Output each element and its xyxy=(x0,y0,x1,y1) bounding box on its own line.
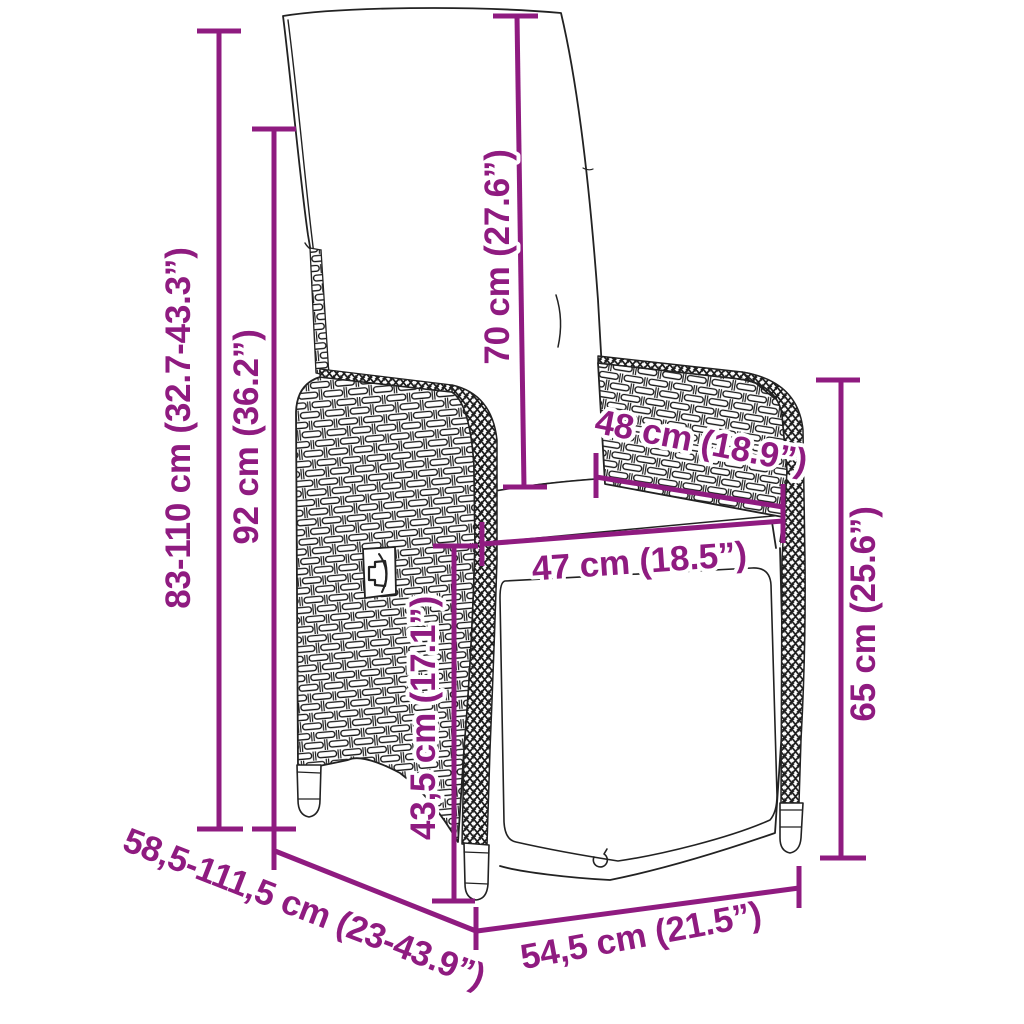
svg-text:83-110 cm (32.7-43.3”): 83-110 cm (32.7-43.3”) xyxy=(159,247,198,608)
svg-text:65 cm (25.6”): 65 cm (25.6”) xyxy=(844,506,883,721)
svg-text:70 cm (27.6”): 70 cm (27.6”) xyxy=(478,149,517,364)
svg-text:92 cm (36.2”): 92 cm (36.2”) xyxy=(227,329,266,544)
svg-text:43,5 cm (17.1”): 43,5 cm (17.1”) xyxy=(404,596,443,840)
